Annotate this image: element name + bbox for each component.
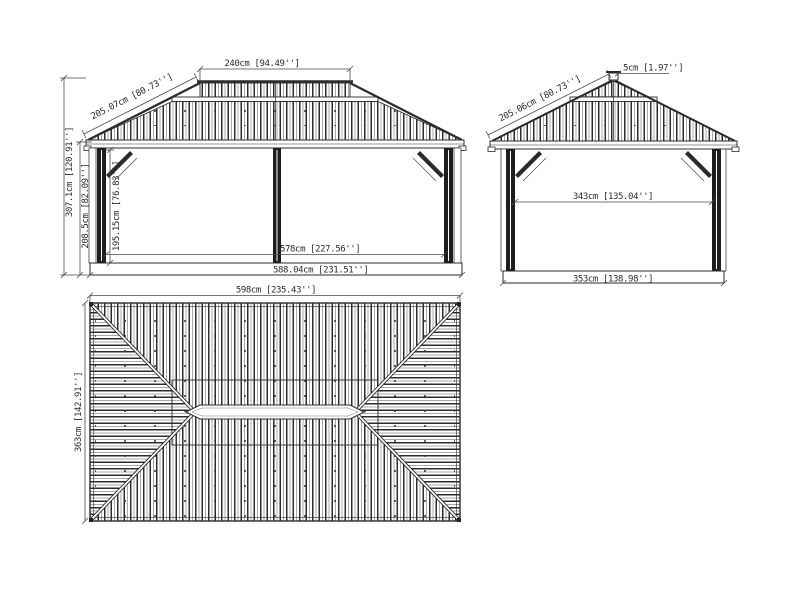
- plan-corner-mark: [457, 518, 461, 522]
- dim-front-clear-height: 195.15cm [76.83'']: [112, 161, 122, 251]
- dim-front-base-width: 588.04cm [231.51'']: [273, 266, 368, 276]
- plan-ridge-cap: [186, 405, 364, 419]
- dim-front-post-span: 578cm [227.56'']: [280, 245, 360, 255]
- dim-plan-roof-width: 598cm [235.43'']: [236, 286, 316, 296]
- dim-side-post-span: 343cm [135.04'']: [573, 192, 653, 202]
- dim-front-total-height: 307.1cm [120.91'']: [65, 127, 75, 217]
- gazebo-technical-drawing: 240cm [94.49''] 205.07cm [80.73''] 307.1…: [0, 0, 800, 600]
- drawing-canvas: 240cm [94.49''] 205.07cm [80.73''] 307.1…: [0, 0, 800, 600]
- side-eave-endcap-right: [732, 147, 739, 152]
- plan-corner-mark: [89, 518, 93, 522]
- front-tier-band: [172, 97, 378, 102]
- side-eave-endcap-left: [488, 147, 495, 152]
- roof-plan-view: 598cm [235.43''] 363cm [142.91'']: [74, 286, 463, 525]
- dim-side-finial-height: 5cm [1.97'']: [623, 64, 683, 74]
- front-back-post-right: [454, 148, 461, 263]
- dim-front-eave-height: 208.5cm [82.09'']: [81, 163, 91, 248]
- side-roof-fastener-dots: [540, 112, 690, 126]
- front-top-tier-panel: [200, 83, 350, 97]
- front-roof-fastener-dots: [130, 110, 420, 126]
- dim-front-top-tier-width: 240cm [94.49'']: [224, 59, 299, 69]
- dim-plan-roof-depth: 363cm [142.91'']: [74, 372, 84, 452]
- dim-side-base-depth: 353cm [138.98'']: [573, 275, 653, 285]
